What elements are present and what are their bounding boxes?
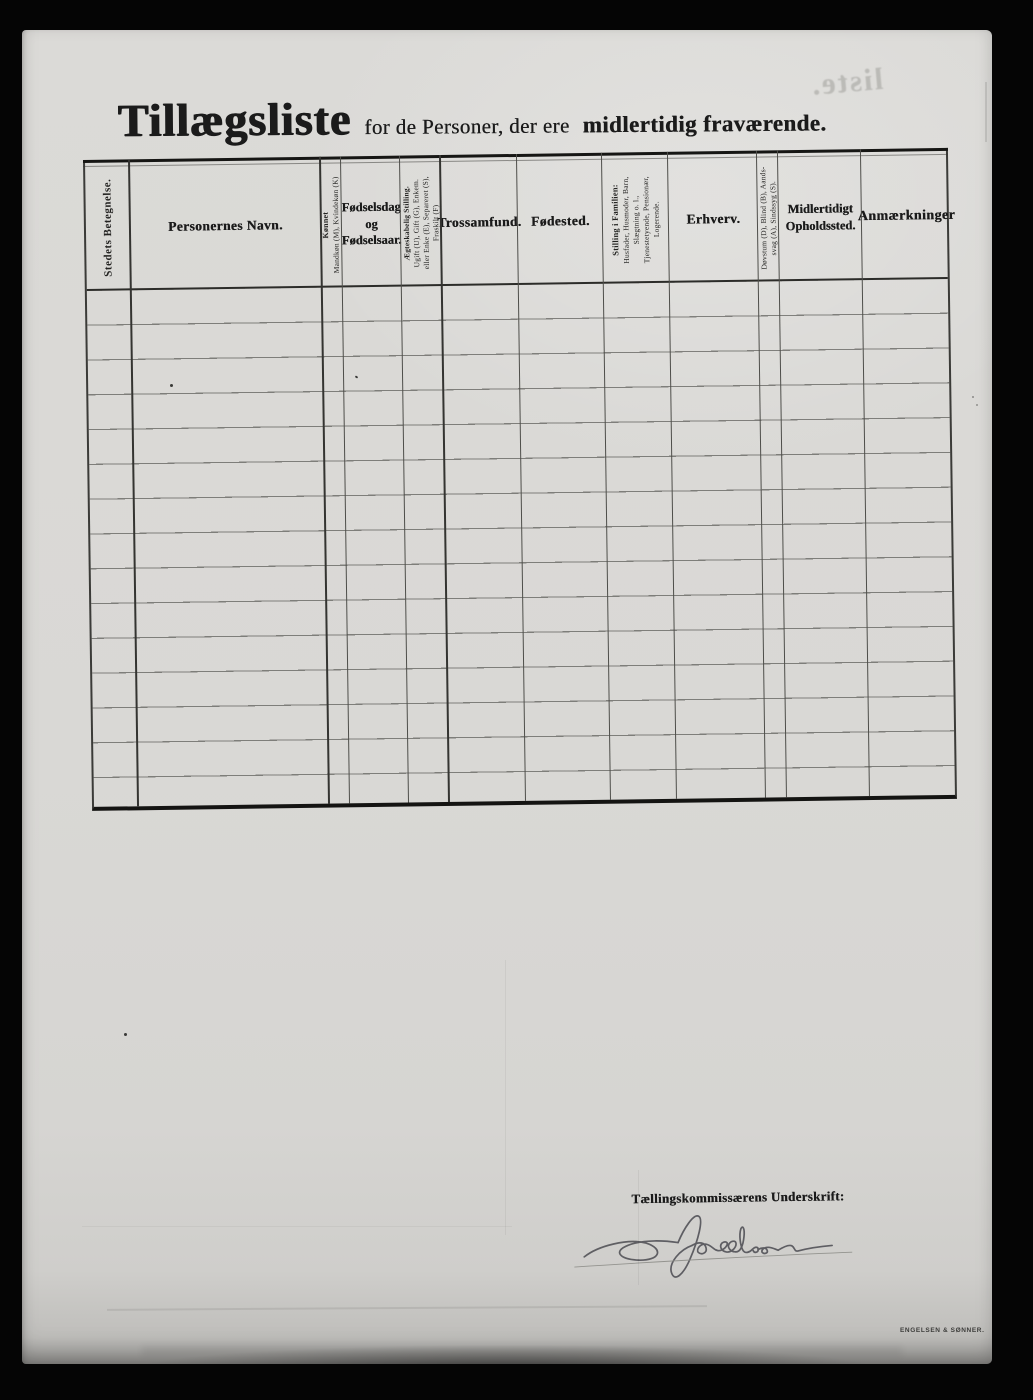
signature-block: Tællingskommissærens Underskrift: bbox=[569, 1188, 870, 1288]
col-header-aegteskabelig-stilling: Ægteskabelig Stilling. Ugift (U), Gift (… bbox=[400, 162, 442, 285]
scan-smudge bbox=[142, 1346, 902, 1356]
col-header-fodselsdag: Fødselsdag og Fødselsaar. bbox=[341, 163, 402, 286]
col-header-anmaerkninger: Anmærkninger bbox=[861, 155, 952, 278]
col-header-fodested: Fødested. bbox=[517, 160, 604, 283]
col-label: Personernes Navn. bbox=[168, 217, 283, 235]
col-header-personernes-navn: Personernes Navn. bbox=[129, 164, 322, 289]
title-tail: midlertidig fraværende. bbox=[583, 110, 827, 138]
col-header-stedets-betegnelse: Stedets Betegnelse. bbox=[85, 166, 131, 289]
col-label: Trossamfund. bbox=[437, 214, 521, 231]
col-label: Erhverv. bbox=[686, 211, 740, 228]
col-label: Stedets Betegnelse. bbox=[102, 179, 114, 277]
signature-label: Tællingskommissærens Underskrift: bbox=[631, 1188, 869, 1207]
title-main: Tillægsliste bbox=[118, 92, 352, 147]
col-label-line: Midlertidigt bbox=[788, 200, 853, 218]
signature-underline bbox=[574, 1252, 852, 1267]
page-title: Tillægsliste for de Personer, der ere mi… bbox=[118, 88, 827, 147]
ink-speck bbox=[976, 404, 978, 406]
col-header-trossamfund: Trossamfund. bbox=[440, 161, 519, 284]
col-sublabel: Husfader, Husmoder, Barn, bbox=[621, 177, 632, 264]
col-label-line: og bbox=[365, 215, 378, 232]
col-sublabel: eller Enke (E), Separeret (S), bbox=[420, 177, 431, 270]
printer-mark: ENGELSEN & SØNNER. bbox=[900, 1327, 984, 1333]
col-header-midlertidigt-opholdssted: Midlertidigt Opholdssted. bbox=[778, 156, 863, 279]
title-mid: for de Personer, der ere bbox=[364, 113, 569, 140]
bleedthrough-line bbox=[107, 1305, 707, 1311]
col-header-erhverv: Erhverv. bbox=[668, 158, 759, 281]
col-label-line: Fødselsaar. bbox=[342, 232, 402, 250]
col-label: Ægteskabelig Stilling. bbox=[401, 177, 412, 270]
col-header-stilling-i-familien: Stilling i Familien: Husfader, Husmoder,… bbox=[602, 159, 670, 282]
col-label: Fødested. bbox=[531, 213, 590, 230]
signature-handwriting bbox=[570, 1206, 861, 1288]
ink-speck bbox=[124, 1033, 127, 1036]
col-sublabel: Tjenestetyende, Pensionær, bbox=[641, 176, 652, 263]
census-form-page: liste. Tillægsliste for de Personer, der… bbox=[22, 30, 992, 1364]
census-table: Stedets Betegnelse. Personernes Navn. Kø… bbox=[83, 148, 957, 811]
col-label: Anmærkninger bbox=[858, 208, 956, 225]
bleedthrough-line bbox=[82, 1226, 512, 1227]
bleedthrough-line bbox=[985, 82, 987, 142]
ink-speck bbox=[972, 396, 974, 398]
ink-speck bbox=[170, 384, 173, 387]
col-label-line: Fødselsdag bbox=[342, 198, 401, 216]
bleedthrough-line bbox=[505, 960, 506, 1235]
col-sublabel: Ugift (U), Gift (G), Enkem. bbox=[411, 177, 422, 270]
scanned-photo-frame: liste. Tillægsliste for de Personer, der… bbox=[0, 0, 1033, 1400]
col-sublabel: Logerende. bbox=[651, 176, 662, 263]
col-label-line: Opholdssted. bbox=[785, 217, 855, 235]
